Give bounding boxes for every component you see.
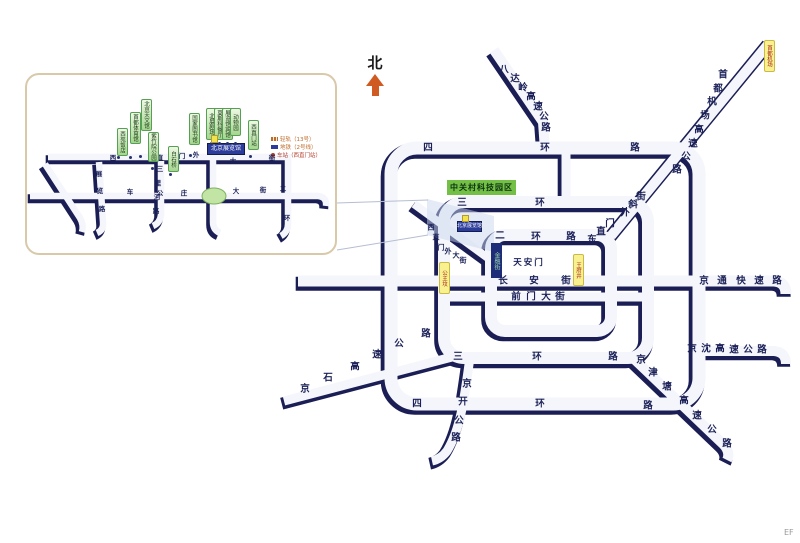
road-label-char: 塘: [662, 382, 672, 392]
poi-tag: 动物园: [230, 108, 241, 136]
road-label-char: 安: [529, 276, 539, 286]
road-label-char: 二: [495, 231, 505, 241]
road-label-char: 场: [700, 111, 710, 121]
legend-item: 轻轨（13号）: [271, 135, 321, 143]
road-label-char: 路: [757, 345, 767, 355]
road-label-char-small: 西: [428, 225, 435, 232]
road-label-char: 长: [498, 276, 508, 286]
road-label-char: 街: [636, 192, 646, 202]
road-label-char: 路: [566, 232, 576, 242]
legend-item-label: 地铁（2号线）: [280, 143, 317, 151]
poi-tag-dot: [249, 155, 252, 158]
road-label-char: 门: [605, 219, 615, 229]
road-label-char: 京: [300, 384, 310, 394]
poi-tag-dot: [169, 173, 172, 176]
road-label-char-small: 外: [445, 249, 452, 256]
inset-road-label-char: 门: [179, 153, 186, 160]
poi-tag-dot: [129, 156, 132, 159]
area-label: 天安门: [513, 259, 545, 268]
road-label-char: 大: [541, 292, 551, 302]
station-marker: [211, 135, 218, 143]
watermark-text: EF: [784, 528, 794, 537]
road-label-char: 京: [687, 344, 697, 354]
road-label-char: 首: [718, 70, 728, 80]
road-label-char: 八: [499, 65, 509, 75]
poi-tag: 国家图书馆: [189, 113, 200, 145]
road-label-char-small: 街: [460, 258, 467, 265]
road-label-char: 高: [350, 362, 360, 372]
poi-tag: 西苑饭店: [117, 128, 128, 156]
road-label-char: 路: [451, 433, 461, 443]
poi-tag: 首都体育馆: [130, 112, 141, 144]
poi-tag: 北京天文馆: [141, 99, 152, 131]
road-label-char: 快: [736, 276, 746, 286]
road-label-char: 公: [394, 339, 404, 349]
road-label-char: 公: [539, 112, 549, 122]
labels-layer: 北 中关村科技园区 金融街 北京展览馆 北京展览馆 轻轨（13号）地铁（2号线）…: [0, 0, 800, 543]
station-marker: [462, 215, 469, 222]
inset-road-label-char: 路: [153, 208, 160, 215]
poi-tag: 西直门站: [248, 120, 259, 150]
road-label-char: 环: [540, 143, 550, 153]
inset-road-label-char: 庄: [181, 190, 188, 197]
road-label-char: 京: [636, 355, 646, 365]
road-label-char: 石: [323, 373, 333, 383]
road-label-char: 高: [679, 396, 689, 406]
metro-line-icon: [271, 145, 278, 149]
zhongguancun-park-label: 中关村科技园区: [447, 180, 516, 195]
road-label-char: 津: [648, 368, 658, 378]
road-label-char: 速: [754, 276, 764, 286]
poi-tag-dot: [139, 155, 142, 158]
road-label-char-small: 直: [433, 235, 440, 242]
north-label: 北: [358, 52, 392, 73]
road-label-char: 环: [535, 399, 545, 409]
road-label-char: 路: [541, 123, 551, 133]
venue-box-inset: 北京展览馆: [207, 143, 245, 155]
road-label-char: 都: [713, 84, 723, 94]
inset-road-label-char: 里: [155, 180, 162, 187]
road-label-char-small: 门: [438, 245, 445, 252]
inset-road-label-char: 街: [260, 187, 267, 194]
poi-tag-dot: [151, 167, 154, 170]
road-label-char: 街: [555, 292, 565, 302]
road-label-char: 机: [707, 97, 717, 107]
inset-road-label-char: 览: [97, 188, 104, 195]
road-label-char: 四: [423, 143, 433, 153]
north-indicator: 北: [358, 52, 392, 86]
road-label-char: 速: [692, 411, 702, 421]
inset-road-label-char: 路: [99, 206, 106, 213]
road-label-char: 通: [717, 276, 727, 286]
legend-item-label: 轻轨（13号）: [280, 135, 315, 143]
station-tag: 王府井: [573, 254, 584, 286]
road-label-char: 公: [681, 152, 691, 162]
poi-tag-dot: [189, 154, 192, 157]
road-label-char: 京: [699, 276, 709, 286]
legend-item: 地铁（2号线）: [271, 143, 321, 151]
road-label-char: 环: [531, 232, 541, 242]
road-label-char: 公: [454, 416, 464, 426]
road-label-char: 路: [608, 352, 618, 362]
inset-road-label-char: 外: [193, 152, 200, 159]
inset-road-label-char: 车: [127, 189, 134, 196]
poi-tag-dot: [226, 142, 229, 145]
beijing-location-map: 北 中关村科技园区 金融街 北京展览馆 北京展览馆 轻轨（13号）地铁（2号线）…: [0, 0, 800, 543]
road-label-char: 路: [722, 439, 732, 449]
station-tag: 首都机场: [764, 40, 775, 72]
road-label-char: 门: [526, 292, 536, 302]
inset-road-label-char: 二: [280, 186, 287, 193]
road-label-char: 高: [715, 344, 725, 354]
road-label-char: 路: [772, 276, 782, 286]
venue-box-main: 北京展览馆: [457, 221, 482, 232]
legend-item-label: 车站（西直门站）: [277, 151, 321, 159]
poi-tag-dot: [117, 156, 120, 159]
road-label-char: 京: [462, 379, 472, 389]
road-label-char: 公: [707, 425, 717, 435]
transit-legend: 轻轨（13号）地铁（2号线）车站（西直门站）: [271, 135, 321, 159]
rail-line-icon: [271, 137, 278, 141]
inset-road-label-char: 西: [110, 155, 117, 162]
inset-road-label-char: 环: [284, 215, 291, 222]
north-arrow-icon: [366, 74, 384, 86]
inset-road-label-char: 街: [269, 155, 276, 162]
road-label-char: 环: [535, 198, 545, 208]
road-label-char: 开: [458, 397, 468, 407]
road-label-char: 速: [729, 345, 739, 355]
poi-tag: 紫竹院公园: [148, 132, 159, 162]
road-label-char: 公: [743, 345, 753, 355]
road-label-char: 街: [561, 276, 571, 286]
poi-tag-dot: [234, 142, 237, 145]
road-label-char: 路: [672, 165, 682, 175]
road-label-char: 四: [412, 399, 422, 409]
road-label-char: 沈: [701, 344, 711, 354]
road-label-char: 速: [688, 139, 698, 149]
road-label-char: 高: [694, 125, 704, 135]
road-label-char: 三: [453, 352, 463, 362]
inset-road-label-char: 三: [157, 166, 164, 173]
road-label-char: 路: [630, 143, 640, 153]
inset-road-label-char: 展: [96, 171, 103, 178]
legend-item: 车站（西直门站）: [271, 151, 321, 159]
road-label-char: 速: [372, 350, 382, 360]
road-label-char-small: 大: [453, 253, 460, 260]
road-label-char: 环: [532, 352, 542, 362]
road-label-char: 前: [511, 292, 521, 302]
road-label-char: 三: [457, 198, 467, 208]
financial-street-bar: 金融街: [491, 243, 502, 278]
inset-road-label-char: 大: [233, 188, 240, 195]
inset-road-label-char: 河: [154, 194, 161, 201]
road-label-char: 路: [643, 401, 653, 411]
poi-tag: 白石桥: [168, 146, 179, 172]
road-label-char: 路: [421, 329, 431, 339]
station-tag: 公主坟: [439, 262, 450, 294]
inset-road-label-char: 大: [230, 158, 237, 165]
